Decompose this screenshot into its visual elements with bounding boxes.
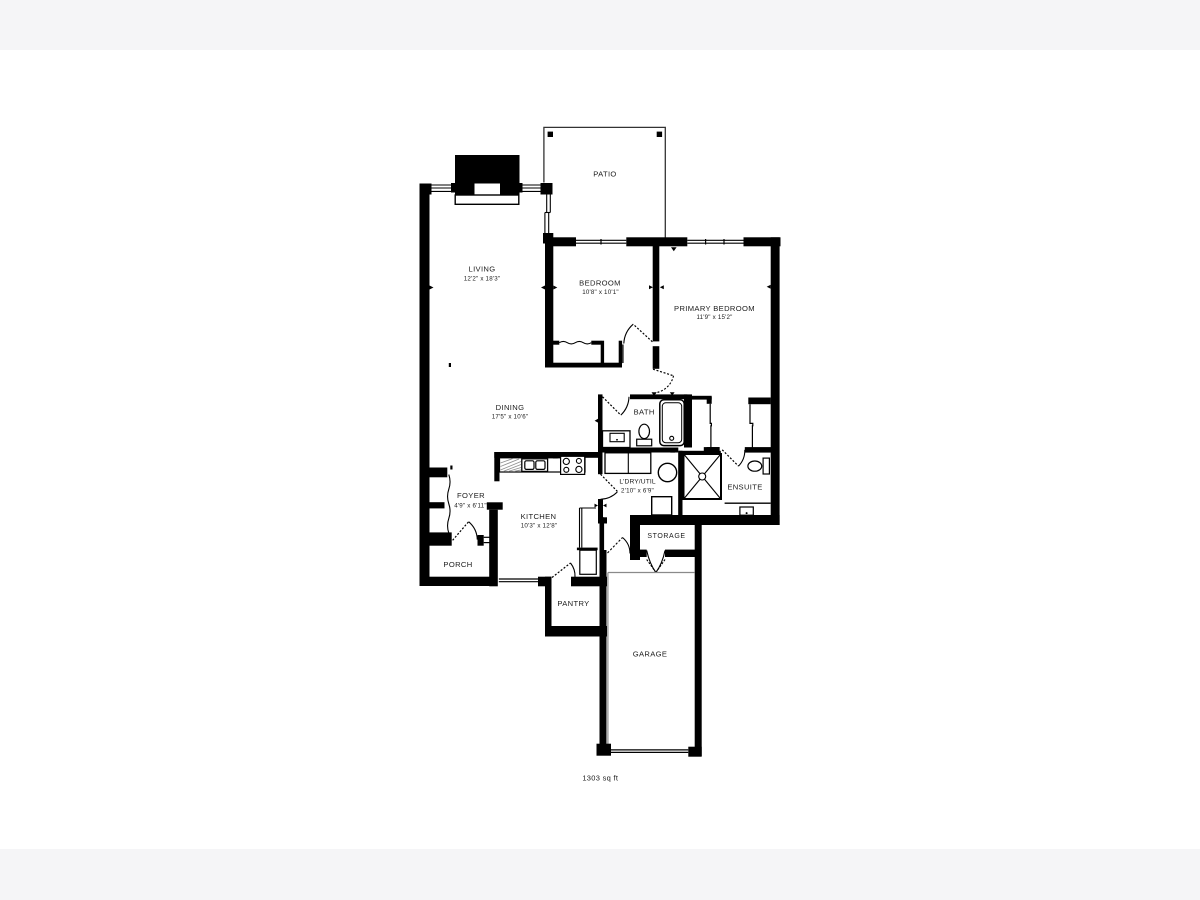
svg-text:KITCHEN: KITCHEN (521, 512, 557, 521)
svg-text:PORCH: PORCH (443, 560, 472, 569)
svg-text:PATIO: PATIO (593, 170, 616, 179)
svg-text:12'2" x 18'3": 12'2" x 18'3" (464, 275, 501, 282)
svg-text:BEDROOM: BEDROOM (579, 279, 621, 288)
svg-text:17'5" x 10'6": 17'5" x 10'6" (492, 413, 529, 420)
svg-text:1303 sq ft: 1303 sq ft (582, 774, 619, 783)
svg-text:FOYER: FOYER (457, 491, 485, 500)
svg-text:STORAGE: STORAGE (647, 533, 685, 540)
svg-text:BATH: BATH (634, 408, 655, 417)
svg-text:10'3" x 12'8": 10'3" x 12'8" (521, 522, 558, 529)
svg-text:PRIMARY BEDROOM: PRIMARY BEDROOM (674, 304, 755, 313)
svg-text:2'10" x 6'9": 2'10" x 6'9" (621, 487, 654, 494)
svg-text:10'8" x 10'1": 10'8" x 10'1" (582, 289, 619, 296)
svg-text:PANTRY: PANTRY (557, 599, 589, 608)
svg-text:11'9" x 15'2": 11'9" x 15'2" (696, 314, 732, 321)
svg-text:ENSUITE: ENSUITE (727, 483, 762, 492)
svg-text:DINING: DINING (496, 403, 525, 412)
svg-text:LIVING: LIVING (469, 265, 496, 274)
svg-text:L'DRY/UTIL: L'DRY/UTIL (619, 479, 656, 486)
svg-text:4'9" x 6'11": 4'9" x 6'11" (454, 502, 486, 509)
svg-text:GARAGE: GARAGE (633, 649, 668, 658)
